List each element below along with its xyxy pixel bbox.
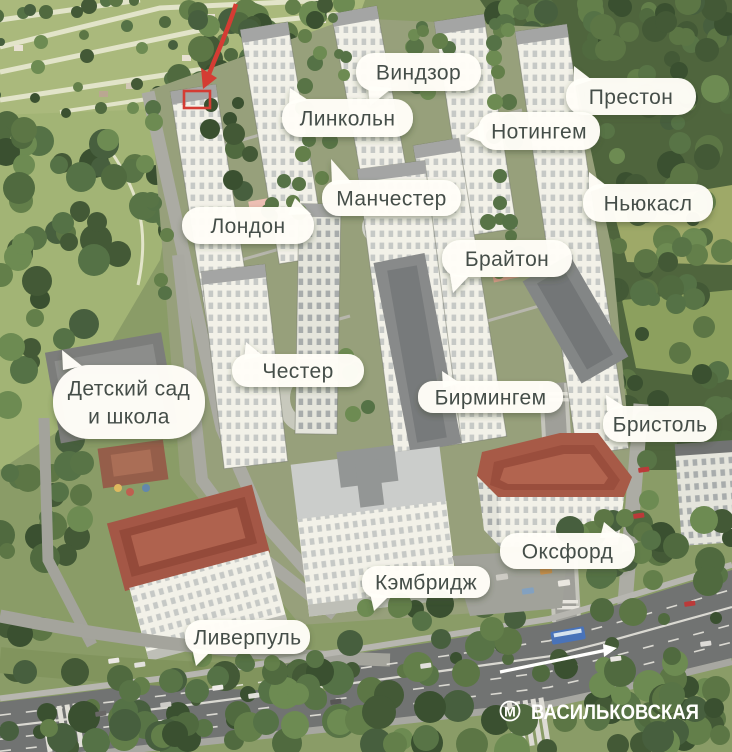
svg-text:Кэмбридж: Кэмбридж xyxy=(375,571,477,594)
svg-text:Ньюкасл: Ньюкасл xyxy=(604,192,693,215)
svg-text:Бристоль: Бристоль xyxy=(613,413,708,436)
svg-text:Линкольн: Линкольн xyxy=(300,107,396,130)
svg-text:Оксфорд: Оксфорд xyxy=(522,540,613,563)
svg-text:и школа: и школа xyxy=(88,405,170,428)
svg-text:Виндзор: Виндзор xyxy=(376,61,461,84)
svg-text:Честер: Честер xyxy=(262,360,333,383)
svg-text:ВАСИЛЬКОВСКАЯ: ВАСИЛЬКОВСКАЯ xyxy=(531,701,699,724)
svg-text:Детский сад: Детский сад xyxy=(68,377,190,400)
svg-text:Нотингем: Нотингем xyxy=(491,120,587,143)
svg-text:Манчестер: Манчестер xyxy=(336,187,446,210)
svg-text:Ливерпуль: Ливерпуль xyxy=(194,626,302,649)
svg-text:М: М xyxy=(504,704,516,720)
svg-text:Брайтон: Брайтон xyxy=(465,248,549,271)
svg-text:Престон: Престон xyxy=(589,86,673,109)
svg-text:Бирмингем: Бирмингем xyxy=(435,386,547,409)
svg-text:Лондон: Лондон xyxy=(211,215,286,238)
